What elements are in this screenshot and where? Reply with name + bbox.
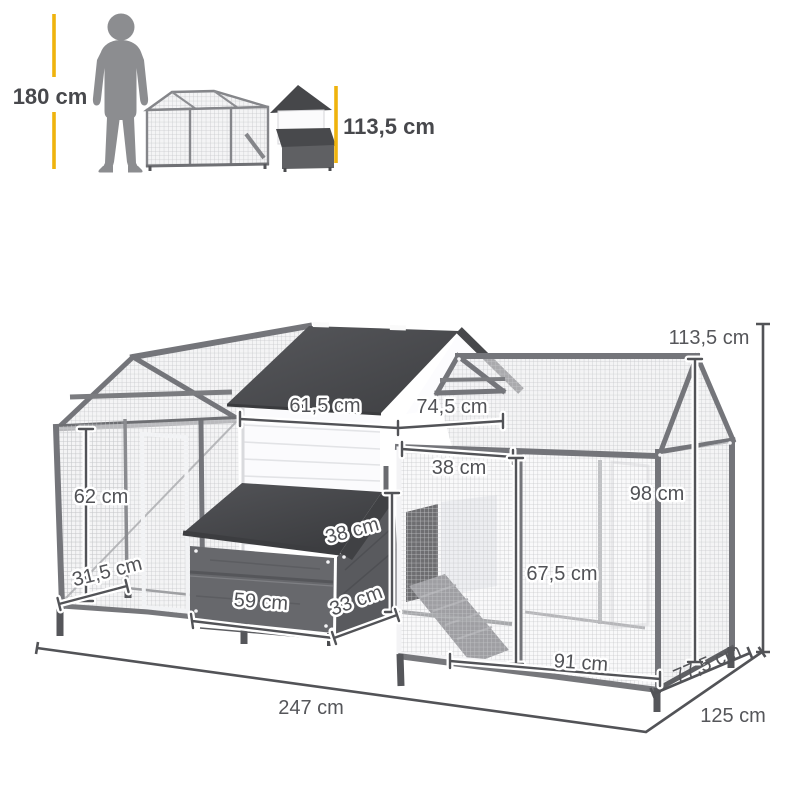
mini-coop: [146, 85, 336, 172]
run-door-width-label: 38 cm: [432, 457, 486, 479]
house-roof-edge-label: 74,5 cm: [416, 396, 487, 418]
scale-reference: 180 cm 113,5 cm: [13, 14, 435, 173]
person-silhouette: [93, 14, 148, 173]
mini-coop-nest-roof: [276, 128, 336, 148]
total-length-label: 247 cm: [278, 697, 344, 719]
nest-box-width-label: 59 cm: [233, 589, 289, 615]
run-door-height-label: 67,5 cm: [526, 563, 597, 585]
right-run-width-label: 91 cm: [553, 650, 609, 676]
person-body: [93, 40, 148, 169]
person-head: [108, 14, 135, 41]
right-run-height-label: 98 cm: [630, 483, 684, 505]
house-front-width-label: 61,5 cm: [289, 395, 360, 417]
total-height-label: 113,5 cm: [669, 327, 750, 349]
mini-coop-nest: [282, 145, 334, 169]
coop-height-label: 113,5 cm: [343, 114, 435, 139]
diagram-canvas: 180 cm 113,5 cm: [0, 0, 800, 800]
person-height-label: 180 cm: [13, 84, 88, 109]
person-feet: [98, 166, 142, 173]
mini-coop-roof: [270, 85, 332, 113]
total-depth-label: 125 cm: [700, 705, 766, 727]
left-run-height-label: 62 cm: [74, 486, 128, 508]
dimension-diagram: 180 cm 113,5 cm: [0, 0, 800, 800]
